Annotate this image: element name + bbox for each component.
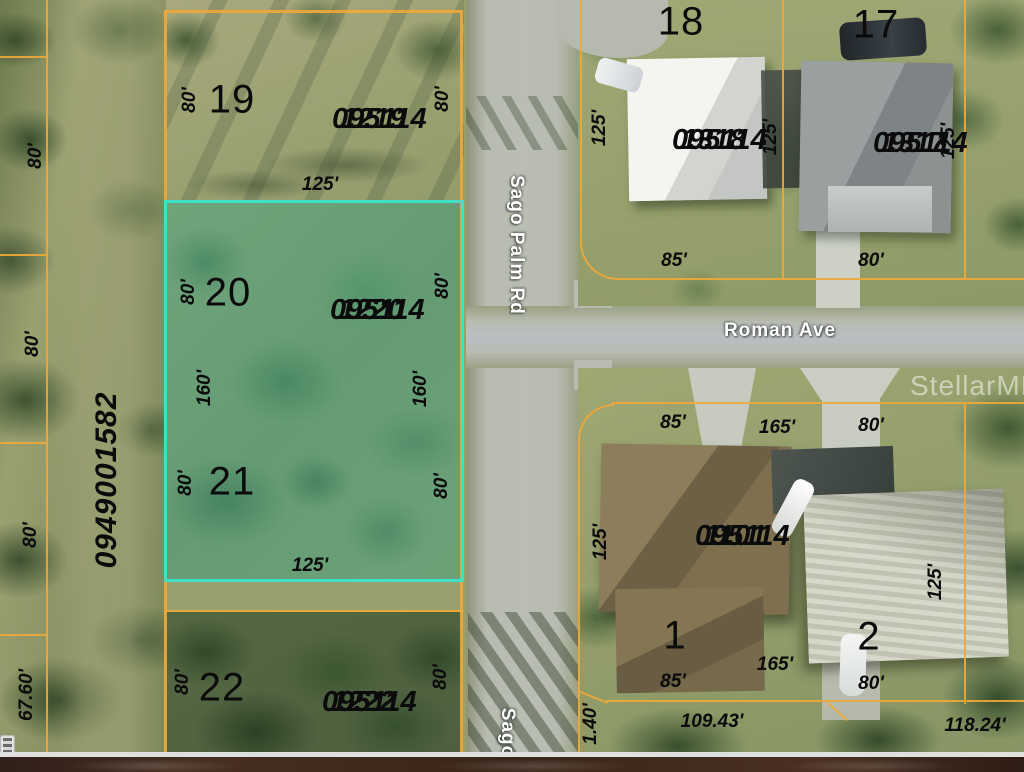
parcel-line (164, 10, 463, 13)
dimension-label: 118.24' (944, 715, 1005, 737)
dimension-label: 80' (430, 664, 452, 690)
parcel-line (0, 56, 46, 58)
lot-number-20: 20 (205, 271, 252, 316)
lot-number-19: 19 (209, 78, 256, 123)
parcel-line (616, 278, 1024, 280)
dimension-label: 125' (589, 110, 611, 146)
dimension-label: 80' (432, 273, 454, 299)
parcel-line (606, 700, 1024, 702)
dimension-label: 80' (25, 143, 47, 169)
next-photo-strip (0, 757, 1024, 772)
lot-number-17: 17 (853, 3, 900, 48)
mls-watermark: StellarMLS (910, 370, 1024, 402)
dimension-label: 125' (302, 174, 338, 196)
parcel-line (580, 0, 582, 225)
parcel-line (46, 0, 48, 757)
dimension-label: 80' (172, 669, 194, 695)
lot-number-22: 22 (199, 666, 246, 711)
dimension-label: 165' (757, 654, 793, 676)
dimension-label: 67.60' (16, 669, 38, 721)
lot-number-1: 1 (663, 614, 686, 659)
lot-number-18: 18 (658, 0, 705, 45)
street-label-sago-palm-rd: Sago Palm Rd (505, 175, 527, 315)
dimension-label: 80' (20, 522, 42, 548)
dimension-label: 85' (660, 671, 686, 693)
dimension-label: 160' (194, 370, 216, 406)
parcel-line (964, 404, 966, 704)
dimension-label: 109.43' (681, 711, 744, 733)
dimension-label: 80' (858, 415, 884, 437)
dimension-label: 85' (661, 250, 687, 272)
dimension-label: 125' (925, 564, 947, 600)
tree-shadow-on-road (466, 96, 578, 150)
dimension-label: 80' (175, 470, 197, 496)
lot-number-2: 2 (857, 615, 880, 660)
dimension-label: 160' (410, 371, 432, 407)
dimension-label: 80' (22, 331, 44, 357)
dimension-label: 1.40' (580, 703, 602, 745)
dimension-label: 125' (760, 119, 782, 155)
street-label-roman-ave: Roman Ave (724, 320, 836, 342)
dimension-label: 85' (660, 412, 686, 434)
dirt-trail (52, 0, 162, 757)
garage-gable (828, 186, 932, 232)
parcel-line (612, 402, 1024, 404)
dimension-label: 125' (938, 123, 960, 159)
parcel-line (164, 610, 462, 612)
dimension-label: 80' (179, 87, 201, 113)
strip-parcel-id: 0949001582 (90, 392, 124, 569)
parcel-line (0, 634, 46, 636)
parcel-line (0, 442, 46, 444)
aerial-parcel-map: 19 18 17 20 21 22 1 2 0951141219 0951141… (0, 0, 1024, 772)
driveway (816, 230, 860, 308)
tree-shadow-on-road (468, 612, 578, 752)
parcel-line (0, 254, 46, 256)
metal-building-shadow (803, 489, 1009, 664)
dimension-label: 80' (178, 279, 200, 305)
dimension-label: 80' (858, 250, 884, 272)
dimension-label: 125' (292, 555, 328, 577)
dimension-label: 80' (431, 473, 453, 499)
dimension-label: 165' (759, 417, 795, 439)
dimension-label: 80' (432, 86, 454, 112)
street-label-sago-partial: Sago (496, 708, 518, 758)
dimension-label: 80' (858, 673, 884, 695)
parcel-line (782, 0, 784, 279)
lot-number-21: 21 (209, 460, 256, 505)
logo-mark (3, 738, 12, 752)
dimension-label: 125' (590, 524, 612, 560)
house-roof-1101-wing (615, 587, 765, 694)
